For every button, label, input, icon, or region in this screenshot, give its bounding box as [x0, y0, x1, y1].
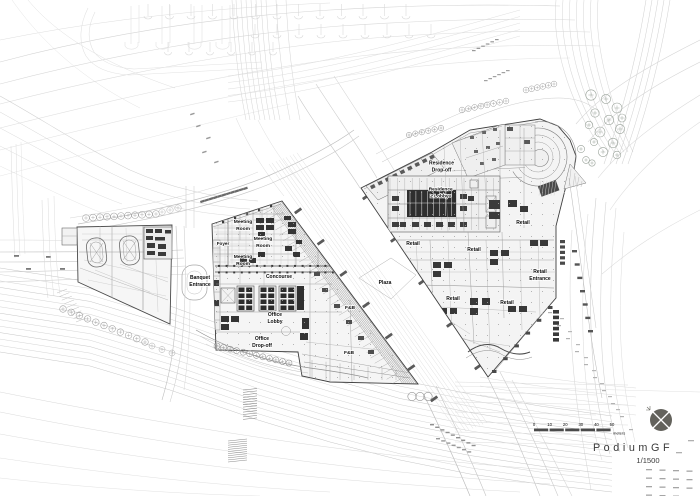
svg-text:P o d i u m G F: P o d i u m G F [593, 442, 670, 454]
svg-text:Retail: Retail [467, 247, 481, 253]
svg-text:≥ Lobby≈: ≥ Lobby≈ [430, 193, 451, 199]
svg-text:Meeting: Meeting [234, 254, 252, 260]
svg-text:Retail: Retail [446, 296, 460, 302]
svg-text:Entrance: Entrance [529, 276, 551, 282]
svg-text:Retail: Retail [516, 220, 530, 226]
svg-text:F&B: F&B [345, 305, 356, 311]
svg-text:Banquet: Banquet [190, 275, 210, 281]
svg-text:Room: Room [236, 261, 251, 267]
svg-text:Meeting: Meeting [254, 236, 272, 242]
svg-text:Entrance: Entrance [189, 282, 211, 288]
svg-text:Retail: Retail [500, 300, 514, 306]
svg-text:Residence: Residence [429, 186, 453, 192]
svg-text:Room: Room [236, 226, 251, 232]
svg-text:Foyer: Foyer [217, 241, 230, 246]
svg-text:Retail: Retail [406, 241, 420, 247]
svg-text:30: 30 [578, 422, 583, 427]
svg-text:Office: Office [268, 312, 282, 318]
svg-text:Room: Room [256, 243, 271, 249]
svg-text:meters: meters [613, 431, 625, 436]
svg-text:Concourse: Concourse [266, 274, 292, 280]
svg-text:Office: Office [255, 336, 269, 342]
svg-text:F&B: F&B [344, 350, 355, 356]
svg-text:Plaza: Plaza [379, 280, 392, 286]
svg-text:50: 50 [610, 422, 615, 427]
svg-text:Residence: Residence [429, 160, 454, 166]
svg-text:Retail: Retail [533, 269, 547, 275]
svg-text:1/1500: 1/1500 [636, 456, 659, 465]
svg-text:10: 10 [547, 422, 552, 427]
svg-text:Drop-off: Drop-off [432, 168, 452, 174]
svg-text:Lobby: Lobby [268, 319, 283, 325]
svg-text:Meeting: Meeting [234, 219, 252, 225]
svg-text:20: 20 [563, 422, 568, 427]
svg-text:40: 40 [594, 422, 599, 427]
svg-text:Drop-off: Drop-off [252, 343, 272, 349]
